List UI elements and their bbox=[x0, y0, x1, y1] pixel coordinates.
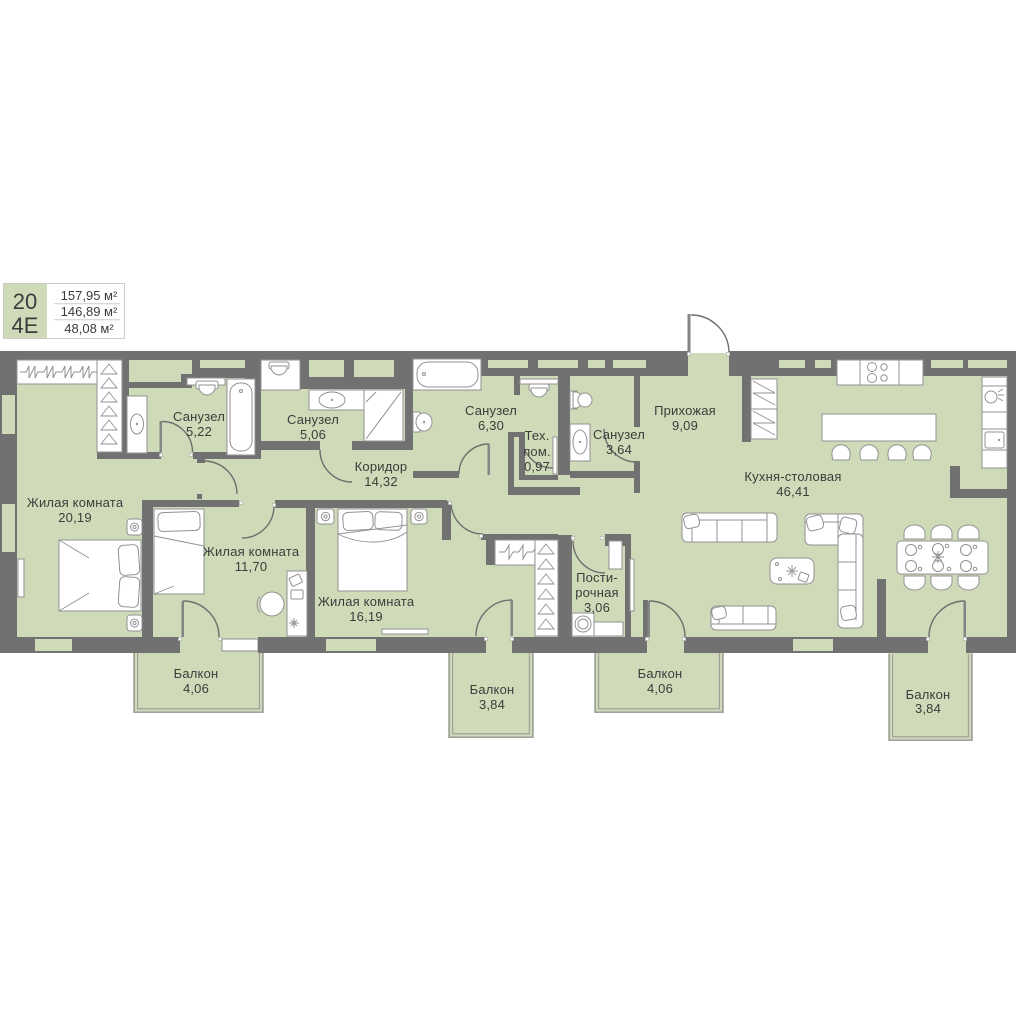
svg-text:Прихожая: Прихожая bbox=[654, 403, 716, 418]
svg-text:3,84: 3,84 bbox=[915, 701, 941, 716]
svg-text:Балкон: Балкон bbox=[906, 687, 951, 702]
svg-text:4,06: 4,06 bbox=[647, 681, 673, 696]
svg-text:Жилая комната: Жилая комната bbox=[27, 495, 124, 510]
svg-text:11,70: 11,70 bbox=[235, 559, 268, 574]
svg-text:Санузел: Санузел bbox=[465, 403, 517, 418]
svg-text:48,08 м²: 48,08 м² bbox=[64, 321, 114, 336]
svg-text:157,95 м²: 157,95 м² bbox=[61, 288, 118, 303]
svg-text:46,41: 46,41 bbox=[776, 484, 810, 499]
svg-text:Жилая комната: Жилая комната bbox=[318, 594, 415, 609]
svg-text:рочная: рочная bbox=[575, 585, 619, 600]
svg-text:Балкон: Балкон bbox=[638, 666, 683, 681]
svg-text:5,06: 5,06 bbox=[300, 427, 326, 442]
svg-text:3,84: 3,84 bbox=[479, 697, 505, 712]
svg-text:9,09: 9,09 bbox=[672, 418, 698, 433]
svg-text:Коридор: Коридор bbox=[355, 459, 408, 474]
svg-text:Жилая комната: Жилая комната bbox=[203, 544, 300, 559]
svg-text:4E: 4E bbox=[12, 313, 39, 338]
svg-text:пом.: пом. bbox=[523, 444, 551, 459]
svg-text:14,32: 14,32 bbox=[364, 474, 398, 489]
svg-text:Балкон: Балкон bbox=[470, 682, 515, 697]
svg-text:Санузел: Санузел bbox=[173, 409, 225, 424]
svg-text:Тех.: Тех. bbox=[524, 428, 549, 443]
svg-text:3,06: 3,06 bbox=[584, 600, 610, 615]
svg-text:0,97: 0,97 bbox=[524, 459, 550, 474]
svg-text:6,30: 6,30 bbox=[478, 418, 504, 433]
svg-text:20: 20 bbox=[13, 289, 37, 314]
svg-text:Санузел: Санузел bbox=[287, 412, 339, 427]
svg-text:4,06: 4,06 bbox=[183, 681, 209, 696]
svg-text:146,89 м²: 146,89 м² bbox=[61, 304, 118, 319]
svg-text:Санузел: Санузел bbox=[593, 427, 645, 442]
svg-text:5,22: 5,22 bbox=[186, 424, 212, 439]
svg-text:Пости-: Пости- bbox=[576, 570, 618, 585]
svg-text:3,64: 3,64 bbox=[606, 442, 632, 457]
svg-text:20,19: 20,19 bbox=[58, 510, 92, 525]
svg-text:Балкон: Балкон bbox=[174, 666, 219, 681]
svg-text:Кухня-столовая: Кухня-столовая bbox=[744, 469, 841, 484]
svg-text:16,19: 16,19 bbox=[349, 609, 383, 624]
